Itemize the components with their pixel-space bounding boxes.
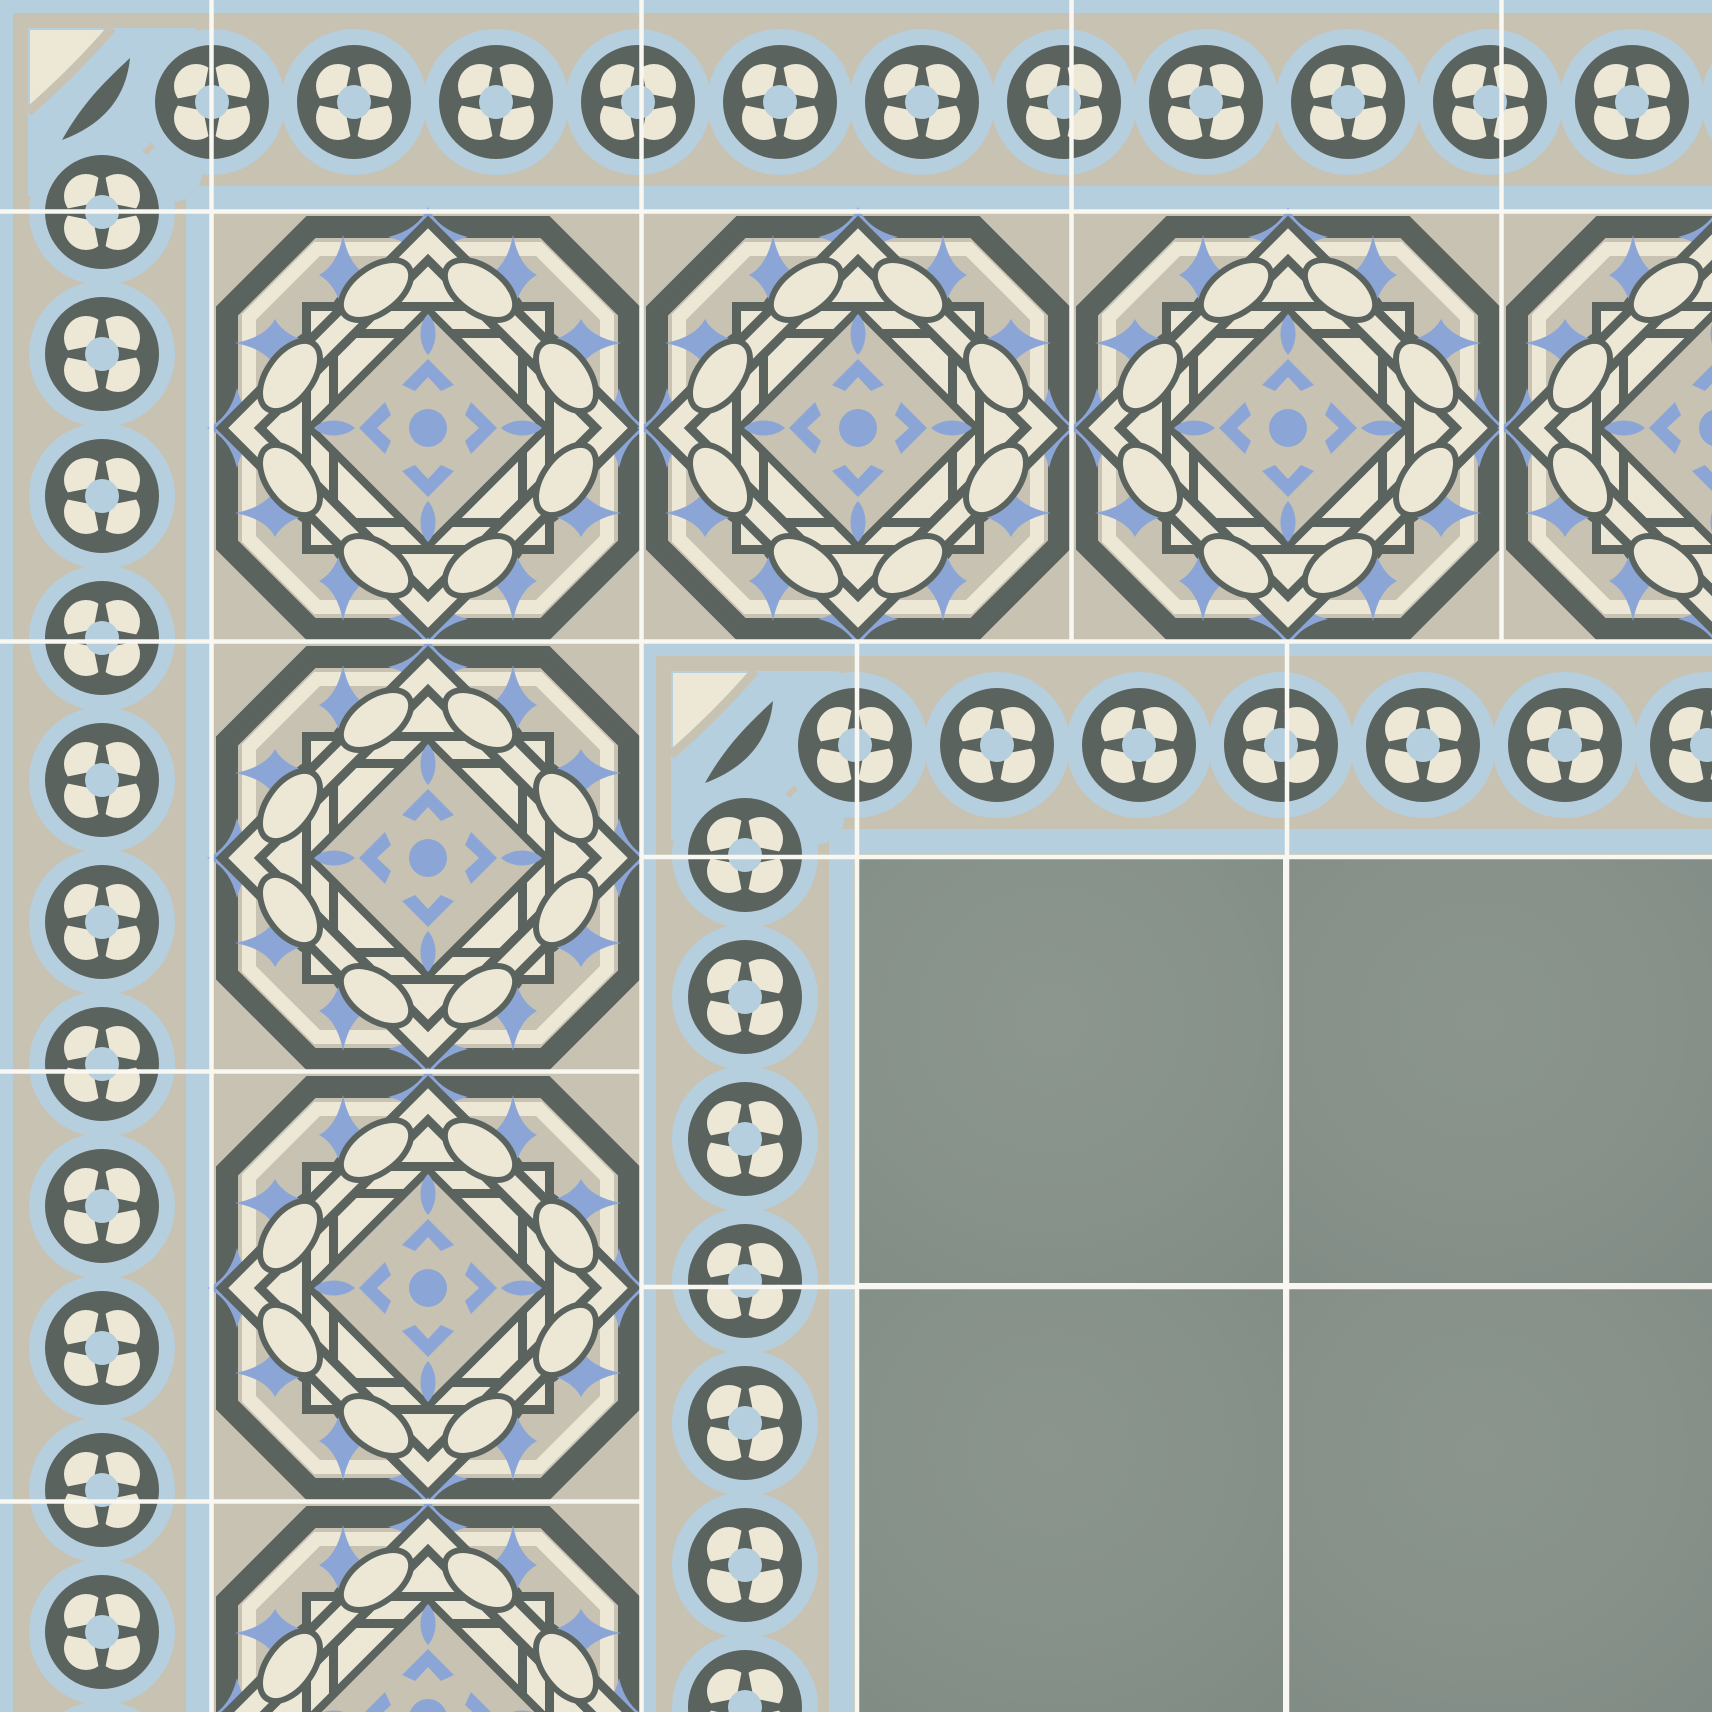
rosette-medallion [849, 29, 995, 175]
green-tile-shade [859, 1289, 1283, 1712]
green-field-tile [859, 859, 1283, 1283]
rosette-medallion [29, 707, 175, 853]
rosette-medallion [707, 29, 853, 175]
ornate-star-tile [1067, 207, 1509, 649]
ornate-star-tile [637, 207, 1079, 649]
rosette-medallion [672, 1208, 818, 1354]
rosette-chain-horizontal [139, 29, 1712, 175]
rosette-medallion [672, 1492, 818, 1638]
edge-line-left [643, 643, 656, 1712]
edge-line-left [0, 0, 13, 1712]
grout-line [643, 1285, 1712, 1290]
rosette-medallion [29, 281, 175, 427]
rosette-medallion [29, 1275, 175, 1421]
flower-center-dot [85, 763, 119, 797]
rosette-chain-vertical [29, 139, 175, 1712]
rosette-medallion [672, 1350, 818, 1496]
rosette-medallion [1492, 672, 1638, 818]
grout-line [1285, 643, 1290, 1712]
rosette-medallion [1208, 672, 1354, 818]
green-field [855, 855, 1712, 1712]
ornate-star-tile-row-top [207, 207, 1712, 649]
flower-center-dot [728, 1548, 762, 1582]
rosette-medallion [1275, 29, 1421, 175]
flower-center-dot [85, 479, 119, 513]
flower-center-dot [85, 621, 119, 655]
flower-center-dot [728, 980, 762, 1014]
ornate-star-tile [207, 1067, 649, 1509]
flower-center-dot [337, 85, 371, 119]
flower-center-dot [980, 728, 1014, 762]
flower-center-dot [621, 85, 655, 119]
grout-line [643, 855, 1712, 860]
rosette-medallion [1350, 672, 1496, 818]
grout-line [209, 0, 214, 1712]
flower-center-dot [85, 1615, 119, 1649]
rosette-medallion [1133, 29, 1279, 175]
grout-line [1499, 0, 1504, 643]
inner-blue-band-horizontal [186, 186, 1712, 211]
green-tile-shade [1289, 859, 1712, 1283]
green-tile-shade [1289, 1289, 1712, 1712]
flower-center-dot [1122, 728, 1156, 762]
rosette-medallion [423, 29, 569, 175]
flower-center-dot [85, 1189, 119, 1223]
rosette-medallion [29, 1133, 175, 1279]
flower-center-dot [1548, 728, 1582, 762]
flower-center-dot [1264, 728, 1298, 762]
ornate-star-tile [207, 1497, 649, 1712]
flower-center-dot [85, 905, 119, 939]
rosette-medallion [281, 29, 427, 175]
tile-floor-scan-svg [0, 0, 1712, 1712]
rosette-medallion [565, 29, 711, 175]
ornate-star-tile [207, 207, 649, 649]
flower-center-dot [479, 85, 513, 119]
flower-center-dot [728, 1122, 762, 1156]
grout-line [855, 643, 860, 1712]
rosette-medallion [29, 1559, 175, 1705]
rosette-medallion [1417, 29, 1563, 175]
rosette-medallion [29, 1417, 175, 1563]
rosette-medallion [672, 924, 818, 1070]
flower-center-dot [1331, 85, 1365, 119]
flower-center-dot [1189, 85, 1223, 119]
grout-line [0, 1499, 643, 1504]
rosette-medallion [29, 991, 175, 1137]
flower-center-dot [728, 1264, 762, 1298]
rosette-medallion [672, 1066, 818, 1212]
rosette-medallion [29, 423, 175, 569]
rosette-medallion [1066, 672, 1212, 818]
flower-center-dot [1406, 728, 1440, 762]
grout-line [1069, 0, 1074, 643]
flower-center-dot [85, 1047, 119, 1081]
rosette-medallion [991, 29, 1137, 175]
ornate-star-tile [1497, 207, 1712, 649]
flower-center-dot [85, 1331, 119, 1365]
inner-blue-band-horizontal [829, 829, 1712, 854]
rosette-medallion [1559, 29, 1705, 175]
flower-center-dot [1615, 85, 1649, 119]
edge-line-top [643, 643, 1712, 656]
flower-center-dot [763, 85, 797, 119]
flower-center-dot [905, 85, 939, 119]
grout-line [0, 1069, 643, 1074]
rosette-medallion [29, 849, 175, 995]
flower-center-dot [728, 1406, 762, 1440]
flower-center-dot [85, 337, 119, 371]
ornate-star-tile-column-left [207, 637, 649, 1712]
rosette-medallion [924, 672, 1070, 818]
cement-tile-floor-scan [0, 0, 1712, 1712]
edge-line-top [0, 0, 1712, 13]
grout-line [0, 209, 1712, 214]
ornate-star-tile [207, 637, 649, 1079]
flower-center-dot [1047, 85, 1081, 119]
rosette-medallion [29, 565, 175, 711]
inner-blue-band-vertical [186, 186, 211, 1712]
inner-blue-band-vertical [829, 829, 854, 1712]
